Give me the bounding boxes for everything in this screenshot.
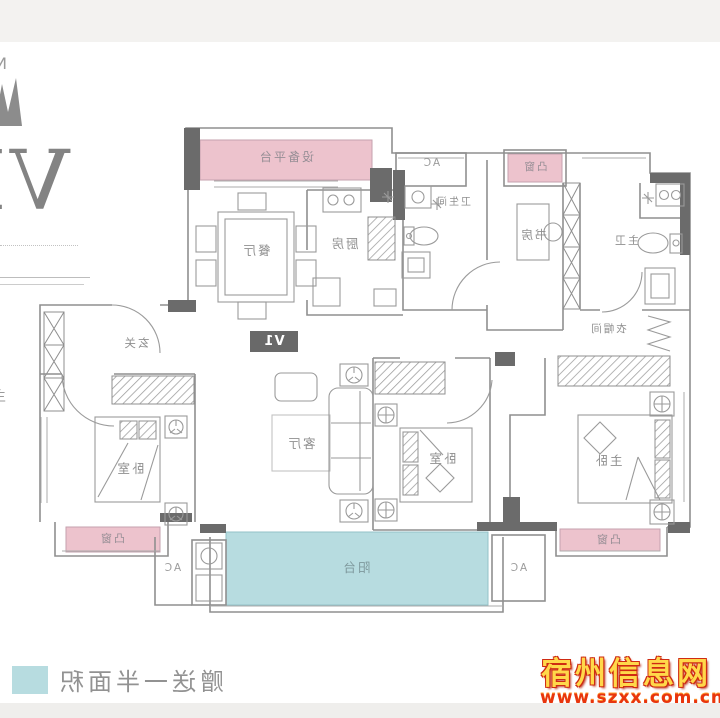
towel-rack-icon [648, 316, 670, 351]
room-label-cloakroom: 衣帽间 [578, 324, 638, 336]
room-label-platform: 设备平台 [200, 151, 372, 164]
sofa-icon [329, 388, 373, 494]
room-label-living: 客厅 [272, 437, 330, 451]
cabinet-icon [374, 289, 396, 306]
nightstand-icon [375, 404, 397, 426]
washing-machine-icon [196, 543, 222, 569]
side-table-icon [340, 364, 368, 386]
master-sink-icon [656, 184, 684, 206]
legend-text: 赠送一半面积 [52, 662, 228, 697]
room-label-kitchen: 厨房 [314, 237, 374, 251]
unit-type-badge: V1 [250, 331, 298, 352]
room-label-master-bedroom: 主卧 [578, 454, 638, 468]
ac-label: AC [150, 563, 194, 575]
room-label-dining: 餐厅 [214, 244, 298, 258]
bay-window-label: 凸窗 [506, 162, 564, 174]
watermark-url: www.szxx.com.cn [540, 688, 708, 708]
room-label-bedroom: 卧室 [94, 462, 166, 476]
bay-window-label: 凸窗 [64, 533, 160, 545]
coffee-table-icon [275, 373, 317, 401]
room-label-bedroom: 卧室 [406, 452, 478, 466]
toilet-icon [404, 227, 438, 245]
nightstand-icon [650, 392, 674, 416]
faucet-icon [642, 192, 654, 204]
room-label-balcony: 阳台 [300, 561, 412, 575]
master-shower-icon [645, 268, 675, 304]
room-label-master-bath: 主卫 [602, 235, 650, 247]
room-label-entry: 玄关 [110, 337, 162, 350]
nightstand-icon [375, 499, 397, 521]
room-label-study: 书房 [510, 229, 556, 242]
ac-label: AC [398, 158, 464, 170]
ac-label: AC [490, 563, 546, 575]
fridge-icon [313, 278, 340, 306]
bed-icon [95, 417, 160, 502]
cabinet-icon [196, 575, 222, 601]
unit-type-badge-text: V1 [250, 331, 298, 352]
shower-icon [402, 252, 430, 278]
nightstand-icon [650, 500, 674, 524]
kitchen-sink-icon [323, 188, 361, 212]
nightstand-icon [165, 416, 187, 438]
floor-plan [0, 0, 720, 718]
room-label-bathroom: 卫生间 [424, 197, 482, 208]
watermark-site-name: 宿州信息网 [538, 648, 714, 693]
legend-swatch [12, 666, 48, 694]
side-table-icon [340, 500, 368, 522]
bay-window-label: 凸窗 [558, 534, 658, 546]
